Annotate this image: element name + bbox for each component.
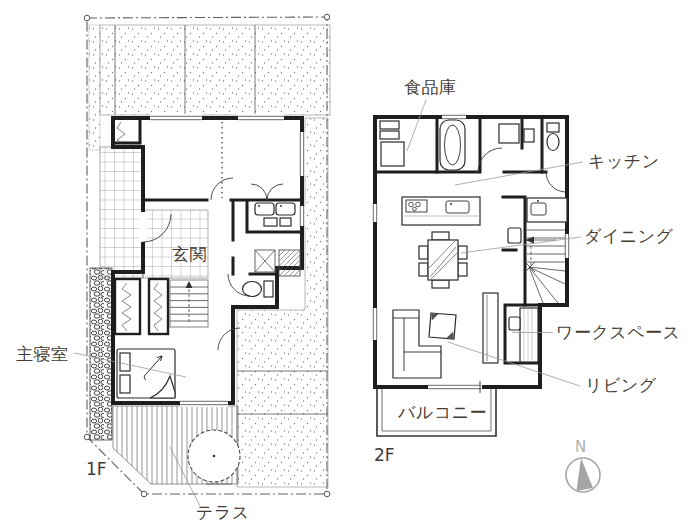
floorplan-canvas: 食品庫 キッチン ダイニング ワークスペース リビング バルコニー 玄関 主寝室… <box>0 0 691 529</box>
stairs-1f <box>170 280 208 327</box>
kitchen-island <box>402 197 480 225</box>
room-label-living: リビング <box>585 377 657 394</box>
room-label-workspace: ワークスペース <box>556 324 681 341</box>
room-label-master-bedroom: 主寝室 <box>16 346 69 363</box>
tv-board <box>483 293 498 363</box>
room-label-balcony: バルコニー <box>398 404 487 421</box>
toilet-1f <box>243 281 274 297</box>
compass-north-label: N <box>575 440 586 455</box>
washroom-vanity <box>255 203 295 226</box>
floor-plan-drawing <box>0 0 691 529</box>
toilet-2f <box>547 123 559 151</box>
floor1-label: 1F <box>86 461 107 478</box>
workspace-desk <box>509 308 538 362</box>
bedroom-closets <box>115 279 168 334</box>
floor2-doors <box>478 148 566 192</box>
tiled-approach <box>100 147 143 278</box>
double-bed <box>117 349 175 398</box>
room-label-kitchen: キッチン <box>588 153 660 170</box>
room-label-dining: ダイニング <box>584 228 674 245</box>
washbasin-counter <box>527 198 567 222</box>
stairs-2f <box>525 230 565 303</box>
stone-path-texture <box>90 268 112 440</box>
floor2-label: 2F <box>374 447 395 464</box>
coat-closet-hanger <box>117 122 125 142</box>
room-label-entrance: 玄関 <box>172 246 207 263</box>
terrace-deck <box>113 406 240 484</box>
pantry-shelves <box>380 121 404 166</box>
under-stair-storage <box>279 250 300 276</box>
washing-machine <box>499 124 519 143</box>
room-label-terrace: テラス <box>196 504 250 521</box>
stool <box>508 228 521 243</box>
coffee-table <box>429 313 456 339</box>
room-label-pantry: 食品庫 <box>404 79 457 96</box>
bathtub <box>440 120 465 170</box>
compass-rose <box>566 458 600 492</box>
dining-table <box>419 232 467 288</box>
compass-needle <box>577 458 594 491</box>
desk-chair <box>509 317 520 330</box>
